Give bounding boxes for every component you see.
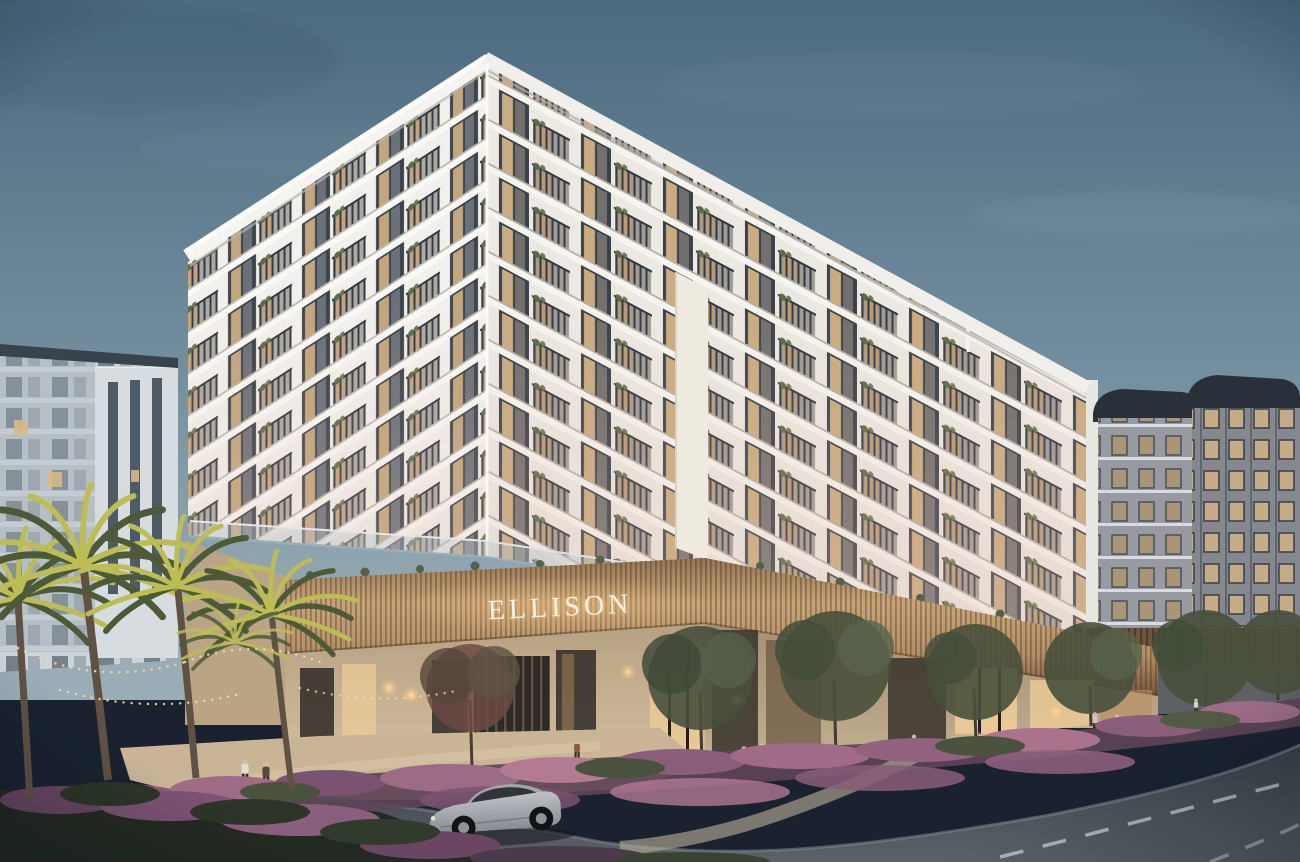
vignette xyxy=(0,0,1300,862)
rendering-stage: ELLISON ELLISON xyxy=(0,0,1300,862)
rendering-canvas: ELLISON ELLISON xyxy=(0,0,1300,862)
